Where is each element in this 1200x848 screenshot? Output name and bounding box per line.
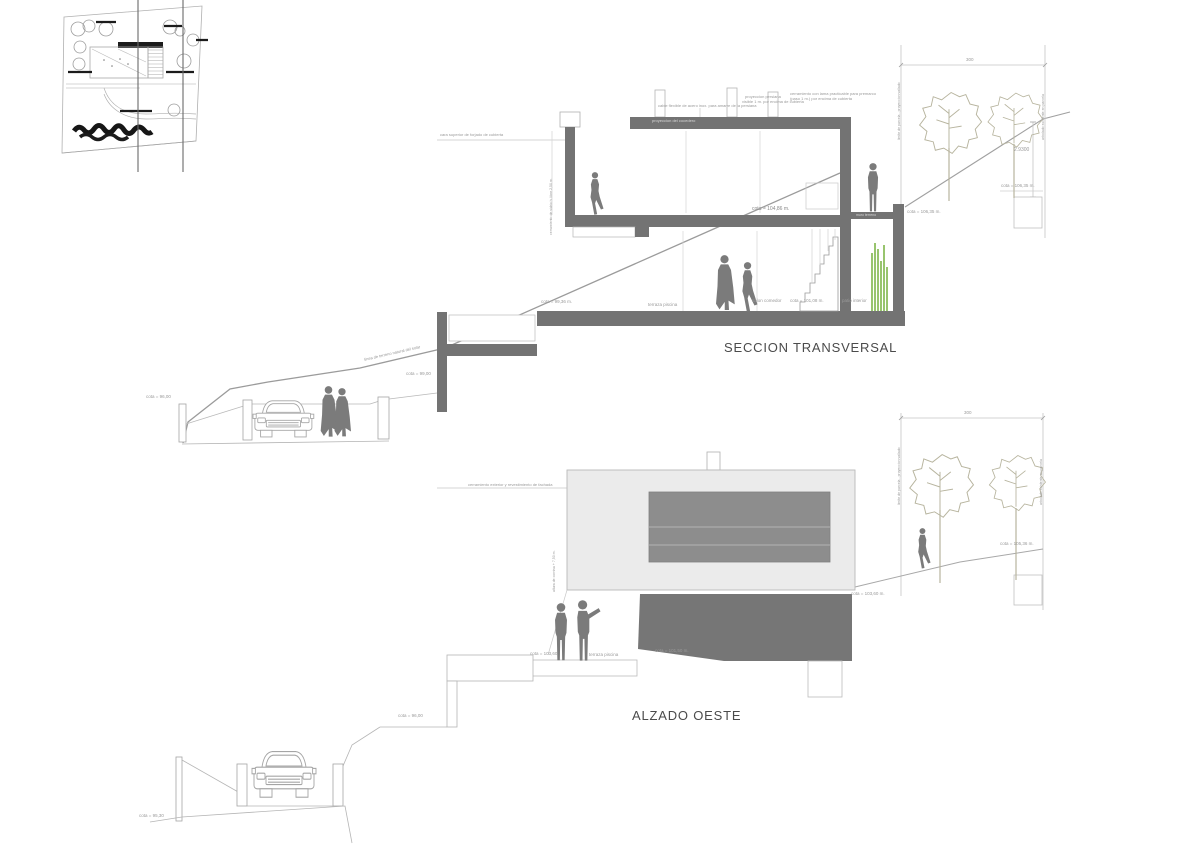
cota-96-elevation: cota = 96,00 — [398, 713, 423, 718]
architectural-linework — [0, 0, 1200, 848]
cota-terrain-mass: cota = 101,50 m. — [655, 648, 689, 653]
retaining-wall — [437, 312, 447, 412]
annotation-facade-edge: altura de cornisa + 7,50 m. — [552, 550, 556, 592]
annotation-roof-slab: cara superior de forjado de cubierta — [440, 133, 503, 138]
street-scene-bottom — [150, 752, 352, 843]
boundary-left-label-elevation: limite de parcela - proyeccion vallado — [897, 447, 901, 505]
person-silhouette — [868, 163, 878, 211]
cota-99: cota = 99,00 — [406, 371, 431, 376]
retaining-wall — [893, 204, 904, 322]
car-front — [252, 752, 316, 798]
cota-tree-elevation: cota = 105,36 m. — [1000, 541, 1034, 546]
cota-tree-section: cota = 106,35 m. — [1001, 183, 1035, 188]
section-drawing — [179, 45, 1070, 444]
tree-icon — [920, 93, 982, 154]
section-title: SECCION TRANSVERSAL — [724, 341, 897, 356]
wall-cut — [565, 127, 575, 215]
person-silhouette — [742, 262, 757, 311]
roof-band-label: proyeccion del cocedero — [652, 119, 695, 124]
tree-icon — [988, 93, 1043, 147]
cota-floor-left: cota = 99,36 m. — [541, 299, 572, 304]
dim-alt: 2.9300 — [1014, 148, 1029, 154]
cota-terrace-left: cota = 103,60 — [530, 651, 557, 656]
site-plan — [62, 0, 208, 172]
elevation-title: ALZADO OESTE — [632, 709, 741, 724]
boundary-left-label-section: limite de parcela - proyeccion vallado — [897, 82, 901, 140]
boundary-footing — [1014, 575, 1042, 605]
terrace-slab — [530, 660, 637, 676]
label-salon: salon comedor — [752, 298, 782, 303]
boundary-footing — [1014, 197, 1042, 228]
plant — [872, 243, 887, 311]
person-silhouette — [716, 255, 735, 310]
person-silhouette — [918, 528, 930, 568]
annotation-lama-2: (paso 1 m.) por encima de cubierta — [790, 97, 852, 102]
dim-300-elevation: 300 — [964, 410, 972, 415]
annotation-cable: cable flexible de acero inox. para amarr… — [658, 104, 757, 109]
floor-slab — [565, 215, 851, 227]
tree-icon — [910, 455, 974, 518]
footing — [808, 661, 842, 697]
ground-slab — [537, 311, 905, 326]
cota-salon: cota = 101,08 m. — [790, 298, 824, 303]
dim-300-section: 300 — [966, 57, 974, 62]
cota-grade-right: cota = 103,60 m. — [851, 591, 885, 596]
wall-cut — [840, 117, 851, 322]
person-silhouette — [335, 388, 352, 436]
cota-9530: cota = 95,30 — [139, 813, 164, 818]
cota-96-section: cota = 96,00 — [146, 394, 171, 399]
label-patio-interior: patio interior — [842, 298, 867, 303]
label-terraza-piscina-elev: terraza piscina — [589, 652, 618, 657]
tree-icon — [989, 456, 1045, 511]
label-terraza-piscina: terraza piscina — [648, 302, 677, 307]
chimney — [707, 452, 720, 470]
boundary-right-label-section: arbolado existente en parcela — [1041, 94, 1045, 140]
drawing-sheet: proyeccion del cocedero cable flexible d… — [0, 0, 1200, 848]
cota-upper-floor: cota = 104,86 m. — [752, 207, 789, 213]
annotation-facade: cerramiento exterior y revestimiento de … — [468, 483, 552, 488]
cota-retaining-wall: cota = 106,35 m. — [907, 209, 941, 214]
boundary-right-label-elevation: arbolado existente en parcela — [1039, 459, 1043, 505]
person-silhouette — [591, 172, 604, 215]
annotation-left-wall: cerramiento de vidrio h. libre 2,50 m. — [549, 178, 553, 235]
car-front — [253, 401, 314, 437]
label-muro: muro terreno — [856, 213, 876, 217]
